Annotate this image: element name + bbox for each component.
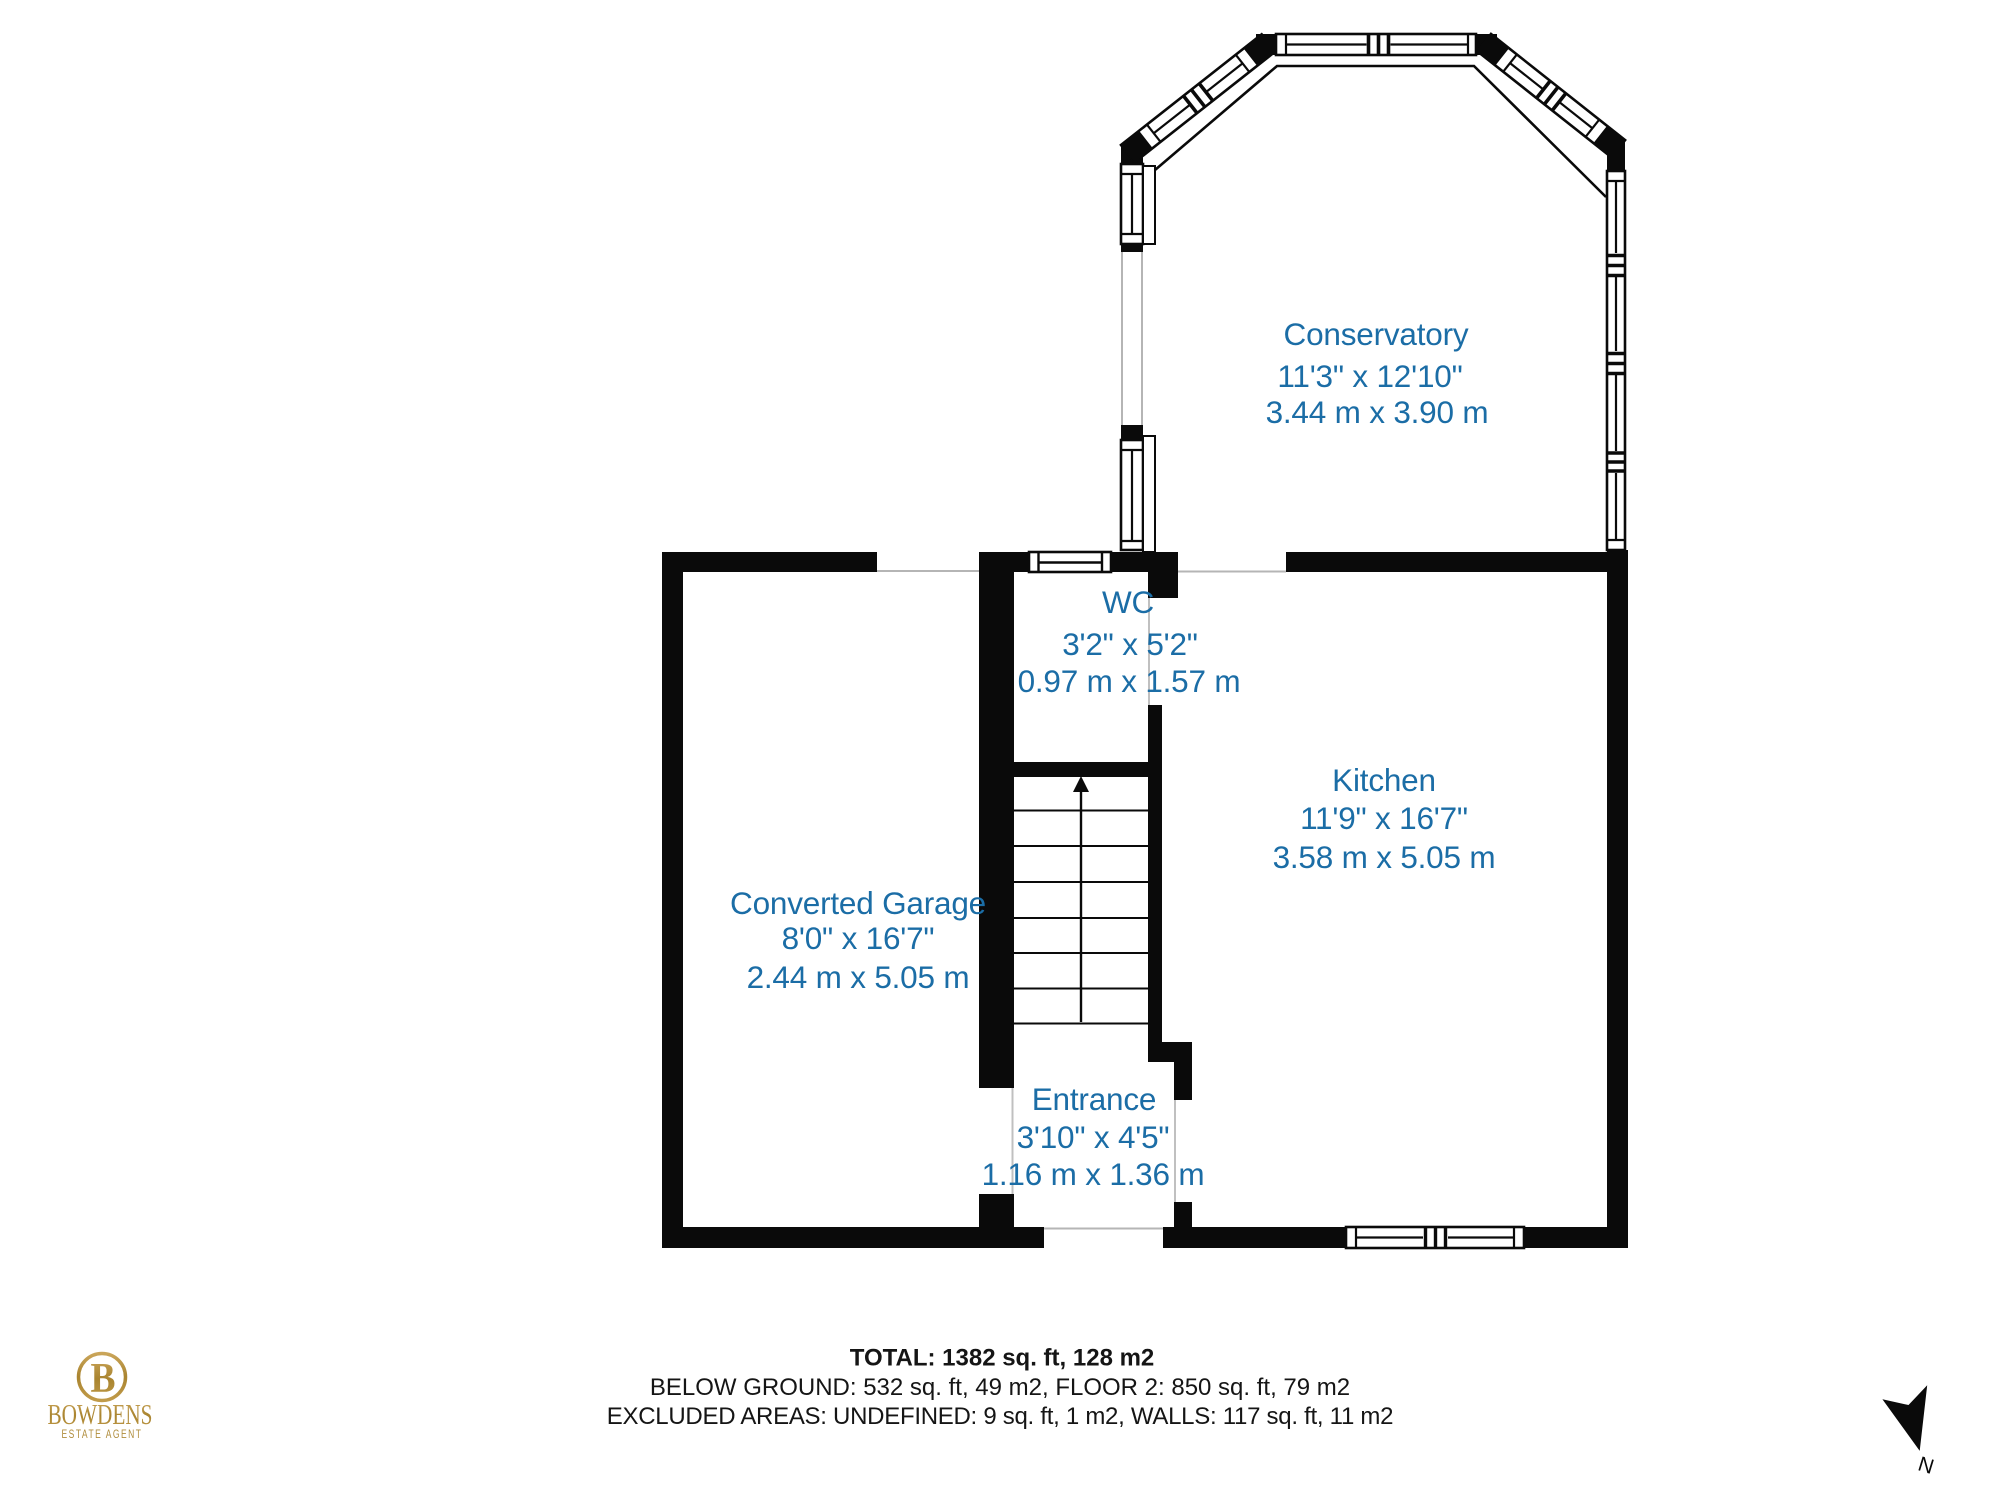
svg-text:BOWDENS: BOWDENS — [48, 1400, 153, 1431]
svg-text:Kitchen: Kitchen — [1332, 762, 1436, 798]
svg-text:11'3" x 12'10": 11'3" x 12'10" — [1277, 358, 1462, 394]
svg-text:B: B — [91, 1356, 116, 1402]
svg-text:2.44 m x 5.05 m: 2.44 m x 5.05 m — [747, 959, 970, 995]
svg-text:3'10" x 4'5": 3'10" x 4'5" — [1017, 1119, 1170, 1155]
svg-text:3'2" x 5'2": 3'2" x 5'2" — [1062, 626, 1198, 662]
svg-text:Converted Garage: Converted Garage — [730, 885, 986, 921]
svg-text:3.58 m x 5.05 m: 3.58 m x 5.05 m — [1273, 839, 1496, 875]
svg-text:BELOW GROUND: 532 sq. ft, 49 m: BELOW GROUND: 532 sq. ft, 49 m2, FLOOR 2… — [650, 1374, 1350, 1401]
svg-text:WC: WC — [1102, 584, 1154, 620]
svg-text:Conservatory: Conservatory — [1284, 316, 1469, 352]
svg-text:3.44 m x 3.90 m: 3.44 m x 3.90 m — [1266, 394, 1489, 430]
svg-text:TOTAL: 1382 sq. ft, 128 m2: TOTAL: 1382 sq. ft, 128 m2 — [850, 1345, 1155, 1372]
svg-text:0.97 m x 1.57 m: 0.97 m x 1.57 m — [1018, 663, 1241, 699]
svg-text:1.16 m x 1.36 m: 1.16 m x 1.36 m — [982, 1156, 1205, 1192]
svg-text:N: N — [1915, 1453, 1936, 1479]
svg-text:8'0" x 16'7": 8'0" x 16'7" — [782, 920, 935, 956]
svg-text:EXCLUDED AREAS: UNDEFINED: 9 s: EXCLUDED AREAS: UNDEFINED: 9 sq. ft, 1 m… — [607, 1403, 1393, 1430]
svg-text:Entrance: Entrance — [1032, 1081, 1156, 1117]
svg-text:ESTATE AGENT: ESTATE AGENT — [62, 1429, 143, 1441]
svg-text:11'9" x 16'7": 11'9" x 16'7" — [1300, 800, 1468, 836]
